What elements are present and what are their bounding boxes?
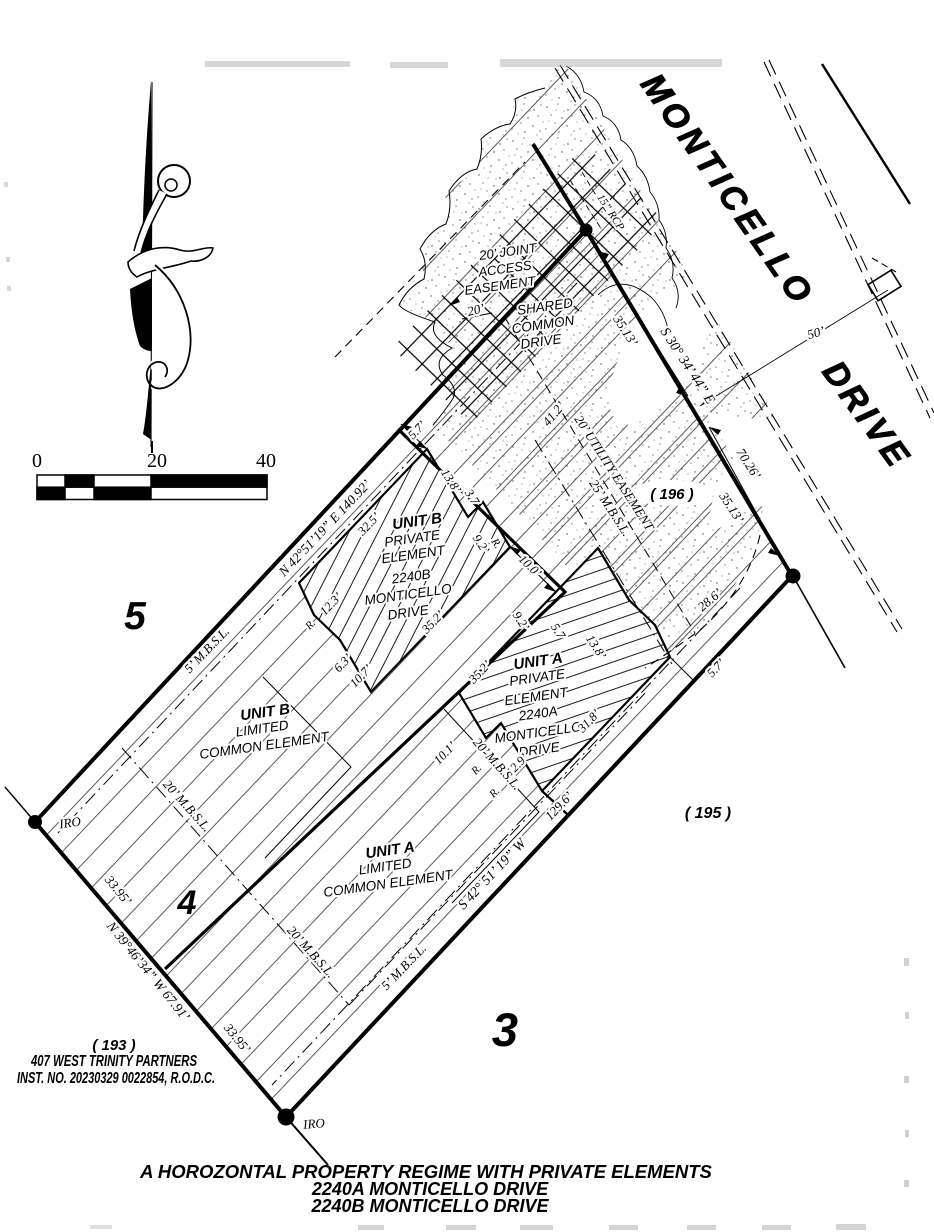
svg-text:( 193 ): ( 193 ) <box>92 1037 135 1054</box>
svg-text:2240B MONTICELLO DRIVE: 2240B MONTICELLO DRIVE <box>310 1196 549 1216</box>
svg-text:INST. NO. 20230329 0022854, R.: INST. NO. 20230329 0022854, R.O.D.C. <box>17 1070 215 1087</box>
svg-text:( 195 ): ( 195 ) <box>685 805 731 822</box>
svg-text:0: 0 <box>32 450 42 472</box>
svg-text:5: 5 <box>124 595 147 638</box>
svg-text:407 WEST TRINITY PARTNERS: 407 WEST TRINITY PARTNERS <box>30 1053 197 1070</box>
svg-text:IRO: IRO <box>57 813 82 831</box>
svg-text:( 196 ): ( 196 ) <box>650 486 693 503</box>
svg-text:40: 40 <box>256 450 276 472</box>
svg-text:20: 20 <box>147 450 167 472</box>
svg-text:3: 3 <box>492 1003 518 1056</box>
svg-text:4: 4 <box>177 884 197 922</box>
svg-text:IRO: IRO <box>302 1115 326 1132</box>
